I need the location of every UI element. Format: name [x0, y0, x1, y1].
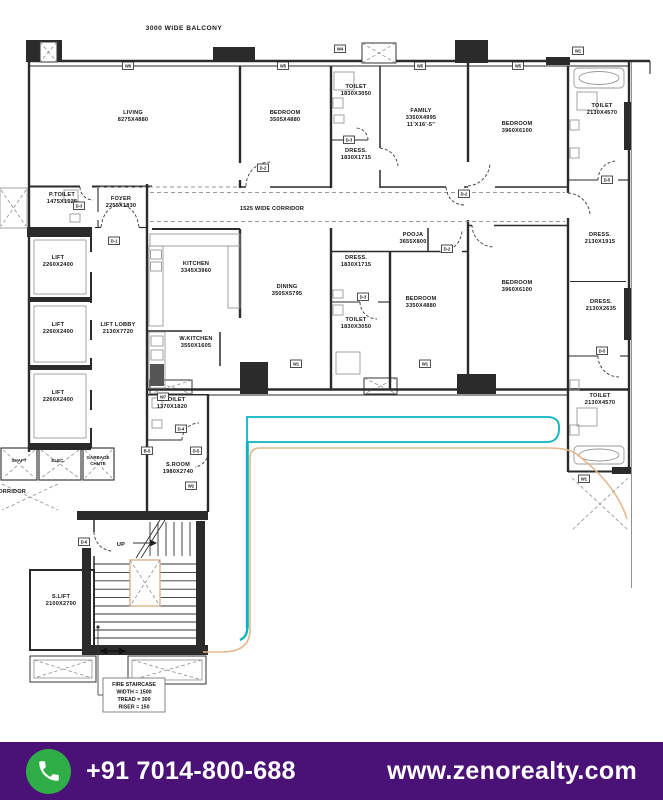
door-marker: D-2 — [459, 190, 470, 198]
room-dress2-dim: 1830X1715 — [341, 262, 371, 268]
door-marker: D-5 — [602, 176, 613, 184]
window-marker: W1 — [420, 360, 431, 368]
room-lift2: LIFT — [52, 322, 65, 328]
svg-text:D-5: D-5 — [599, 349, 606, 354]
room-toilet1: TOILET — [346, 84, 367, 90]
svg-text:W1: W1 — [293, 362, 300, 367]
contact-block: +91 7014-800-688 — [26, 749, 296, 794]
svg-text:W2: W2 — [188, 484, 195, 489]
fire-note-line1: FIRE STAIRCASE — [112, 682, 156, 688]
svg-text:D-2: D-2 — [461, 192, 468, 197]
window-marker: W2 — [186, 482, 197, 490]
window-marker: W1 — [579, 475, 590, 483]
room-dress4-dim: 2130X2635 — [586, 306, 616, 312]
svg-text:W1: W1 — [575, 49, 582, 54]
room-toilet2: TOILET — [592, 103, 613, 109]
window-marker: W6 — [123, 62, 134, 70]
room-dress4: DRESS. — [590, 299, 612, 305]
room-dress3: DRESS. — [589, 232, 611, 238]
svg-text:D-3: D-3 — [76, 204, 83, 209]
room-wkitchen: W.KITCHEN — [179, 336, 212, 342]
room-dress3-dim: 2130X1915 — [585, 239, 615, 245]
door-marker: D-2 — [442, 245, 453, 253]
room-foyer: FOYER — [111, 196, 131, 202]
door-marker: D-5 — [191, 447, 202, 455]
corridor-left-label: CORRIDOR — [0, 489, 26, 495]
room-wkitchen-dim: 3550X1605 — [181, 343, 211, 349]
room-foyer-dim: 2255X1830 — [106, 203, 136, 209]
window-marker: W5 — [278, 62, 289, 70]
floor-plan: 3000 WIDE BALCONY LIVING 8275X4880 BEDRO… — [0, 0, 663, 742]
room-toilet1-dim: 1830X3050 — [341, 91, 371, 97]
svg-text:D-3: D-3 — [360, 295, 367, 300]
room-bedroom3: BEDROOM — [406, 296, 437, 302]
door-marker: D-5 — [597, 347, 608, 355]
room-living: LIVING — [123, 110, 143, 116]
door-marker: D-2 — [258, 164, 269, 172]
room-sroom: S.ROOM — [166, 462, 190, 468]
hatch-area — [572, 478, 628, 530]
door-marker: D-6 — [79, 538, 90, 546]
columns — [26, 40, 631, 655]
fire-note-line3: TREAD = 300 — [117, 697, 150, 703]
room-slift: S.LIFT — [52, 594, 71, 600]
svg-text:W1: W1 — [422, 362, 429, 367]
room-ptoilet: P.TOILET — [49, 192, 75, 198]
room-pooja-dim: 3655X800 — [399, 239, 426, 245]
room-liftlobby: LIFT LOBBY — [101, 322, 136, 328]
door-marker: B-5 — [142, 447, 153, 455]
balcony-band — [203, 417, 627, 652]
room-toilet4-dim: 2130X4570 — [585, 400, 615, 406]
room-stoilet-dim: 1370X1820 — [157, 404, 187, 410]
room-shaft: SHAFT — [12, 458, 27, 463]
room-dress2: DRESS. — [345, 255, 367, 261]
fire-note-line4: RISER = 150 — [118, 705, 149, 711]
room-toilet3: TOILET — [346, 317, 367, 323]
room-bedroom2: BEDROOM — [502, 121, 533, 127]
svg-text:W1: W1 — [581, 477, 588, 482]
room-lift1-dim: 2260X2400 — [43, 262, 73, 268]
svg-text:D-5: D-5 — [193, 449, 200, 454]
room-toilet2-dim: 2130X4570 — [587, 110, 617, 116]
interior-walls — [1, 62, 630, 650]
door-marker: D-4 — [176, 425, 187, 433]
room-bedroom1: BEDROOM — [270, 110, 301, 116]
room-bedroom2-dim: 3960X6100 — [502, 128, 532, 134]
room-lift3: LIFT — [52, 390, 65, 396]
svg-text:D-1: D-1 — [111, 239, 118, 244]
window-marker: W4 — [335, 45, 346, 53]
room-ptoilet-dim: 1475X1525 — [47, 199, 77, 205]
room-dress1: DRESS. — [345, 148, 367, 154]
room-dining-dim: 3505X5795 — [272, 291, 302, 297]
up-label: UP — [117, 542, 125, 548]
room-dining: DINING — [277, 284, 298, 290]
svg-text:D-2: D-2 — [444, 247, 451, 252]
door-marker: D-3 — [358, 293, 369, 301]
room-sroom-dim: 1980X2740 — [163, 469, 193, 475]
room-toilet4: TOILET — [590, 393, 611, 399]
whatsapp-icon[interactable] — [26, 749, 71, 794]
room-kitchen-dim: 3345X3960 — [181, 268, 211, 274]
room-lift3-dim: 2260X2400 — [43, 397, 73, 403]
svg-text:W5: W5 — [515, 64, 522, 69]
room-family: FAMILY — [410, 108, 431, 114]
room-bedroom1-dim: 3505X4880 — [270, 117, 300, 123]
room-liftlobby-dim: 2130X7720 — [103, 329, 133, 335]
window-marker: W7 — [158, 393, 169, 401]
room-lift1: LIFT — [52, 255, 65, 261]
phone-number[interactable]: +91 7014-800-688 — [86, 757, 296, 786]
svg-text:D-6: D-6 — [81, 540, 88, 545]
room-bedroom4-dim: 3960X6100 — [502, 287, 532, 293]
footer-bar: +91 7014-800-688 www.zenorealty.com — [0, 742, 663, 800]
room-living-dim: 8275X4880 — [118, 117, 148, 123]
door-marker: D-1 — [109, 237, 120, 245]
room-bedroom3-dim: 3350X4880 — [406, 303, 436, 309]
room-family-dim2: 11'X16'-5" — [407, 122, 435, 128]
svg-text:W5: W5 — [417, 64, 424, 69]
room-slift-dim: 2100X2700 — [46, 601, 76, 607]
corridor-dashes — [100, 187, 565, 222]
fire-note-line2: WIDTH = 1500 — [116, 690, 151, 696]
corridor-label: 1525 WIDE CORRIDOR — [240, 206, 304, 212]
svg-text:W7: W7 — [160, 395, 167, 400]
room-lift2-dim: 2260X2400 — [43, 329, 73, 335]
fire-staircase — [93, 520, 196, 655]
door-marker: D-3 — [344, 136, 355, 144]
room-bedroom4: BEDROOM — [502, 280, 533, 286]
room-garbage2: CHUTE — [90, 461, 106, 466]
website-link[interactable]: www.zenorealty.com — [387, 757, 637, 786]
window-marker: W1 — [291, 360, 302, 368]
room-kitchen: KITCHEN — [183, 261, 209, 267]
svg-text:D-4: D-4 — [178, 427, 185, 432]
svg-text:B-5: B-5 — [144, 449, 151, 454]
room-dress1-dim: 1830X1715 — [341, 155, 371, 161]
svg-text:W4: W4 — [337, 47, 344, 52]
window-marker: W1 — [573, 47, 584, 55]
window-marker: W5 — [513, 62, 524, 70]
svg-text:W6: W6 — [125, 64, 132, 69]
svg-text:D-2: D-2 — [260, 166, 267, 171]
balcony-label: 3000 WIDE BALCONY — [146, 25, 223, 32]
room-garbage: GARBAGE — [86, 455, 109, 460]
room-elec: ELEC. — [51, 458, 64, 463]
room-family-dim: 3350X4995 — [406, 115, 436, 121]
door-marker: D-3 — [74, 202, 85, 210]
svg-text:D-5: D-5 — [604, 178, 611, 183]
room-toilet3-dim: 1830X3050 — [341, 324, 371, 330]
window-marker: W5 — [415, 62, 426, 70]
svg-text:D-3: D-3 — [346, 138, 353, 143]
svg-text:W5: W5 — [280, 64, 287, 69]
room-pooja: POOJA — [403, 232, 424, 238]
door-swings — [80, 128, 619, 551]
